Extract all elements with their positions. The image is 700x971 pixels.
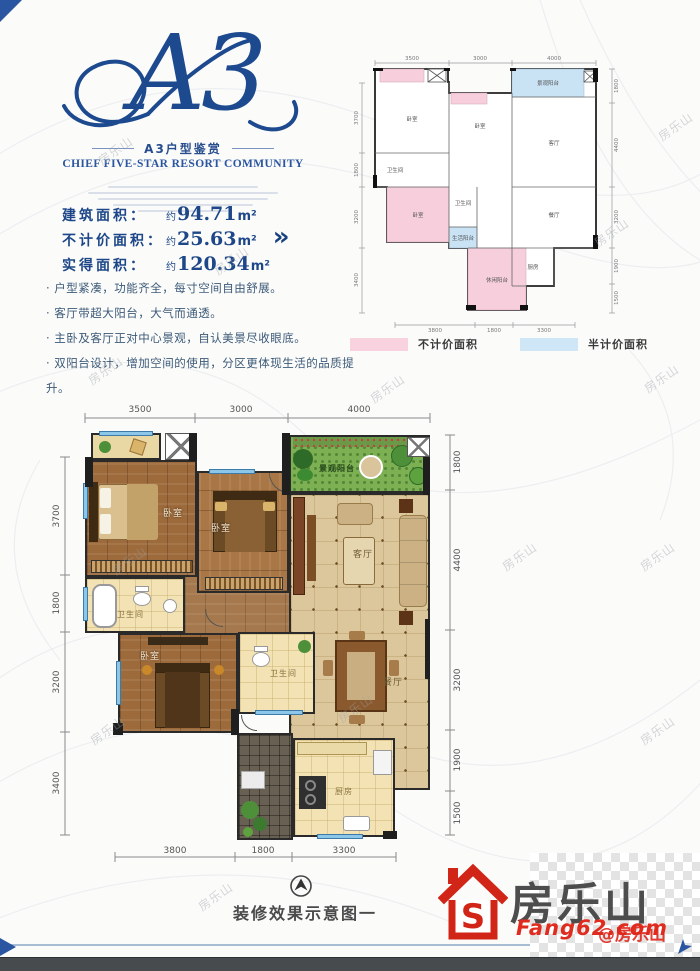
unit-subtitle: A3户型鉴赏 <box>144 140 222 157</box>
bed-blanket <box>165 672 200 728</box>
dim-label: 1500 <box>614 291 620 305</box>
nightstand-lamp <box>142 665 152 675</box>
window <box>116 661 121 705</box>
pillow <box>215 502 227 511</box>
dim-label: 1500 <box>453 801 463 824</box>
plant <box>243 827 253 837</box>
dim-label: 4000 <box>547 56 561 62</box>
subtitle-line-right <box>232 148 274 149</box>
bay-window-bedroom1 <box>91 433 161 460</box>
plant <box>241 801 259 819</box>
approx-mark: 约 <box>166 208 176 223</box>
legend-label-half-charge: 半计价面积 <box>588 336 648 352</box>
dim-label: 4400 <box>614 138 620 152</box>
plan-caption: 装修效果示意图一 <box>225 900 385 924</box>
area-value: 94.71 <box>177 203 237 225</box>
wall-segment <box>85 457 93 487</box>
subtitle-row: A3户型鉴赏 <box>58 140 308 157</box>
fridge <box>373 750 392 775</box>
kitchen-counter <box>297 742 367 755</box>
room-label: 卧室 <box>412 211 424 219</box>
room-kitchen: 厨房 <box>293 738 395 837</box>
feature-item: · 双阳台设计，增加空间的使用，分区更体现生活的品质提升。 <box>46 351 376 401</box>
north-arrow-icon <box>289 874 313 898</box>
table-decor <box>129 438 147 456</box>
burner <box>305 780 316 791</box>
room-service-balcony <box>237 733 293 840</box>
wall-segment <box>423 457 430 495</box>
window <box>317 834 363 839</box>
room-label: 卧室 <box>140 649 160 662</box>
room-bedroom3: 卧室 <box>118 633 238 733</box>
room-label: 卧室 <box>163 506 183 519</box>
window <box>83 483 88 519</box>
area-label: 实得面积： <box>62 255 166 275</box>
dim-label: 4400 <box>453 548 463 571</box>
bathtub <box>92 584 117 628</box>
feature-list: · 户型紧凑，功能齐全，每寸空间自由舒展。 · 客厅带超大阳台，大气而通透。 ·… <box>46 276 376 401</box>
wardrobe <box>91 560 193 573</box>
armchair <box>337 503 373 525</box>
area-label: 不计价面积： <box>62 230 166 250</box>
room-bedroom2: 卧室 <box>197 471 289 593</box>
approx-mark: 约 <box>166 258 176 273</box>
dim-label: 3400 <box>354 273 360 287</box>
brand-logo-block: S 房乐山 Fang62.com @房乐山 <box>438 854 700 958</box>
bed-headboard <box>155 663 210 672</box>
svg-text:S: S <box>461 897 486 937</box>
main-floorplan: 卧室 卧室 客厅 餐厅 景观阳台 <box>85 433 430 850</box>
feature-column <box>293 497 305 595</box>
window <box>255 710 303 715</box>
bed-headboard <box>89 482 98 542</box>
pillow <box>100 488 111 508</box>
double-chevron-icon: » <box>273 232 290 242</box>
dim-label: 3500 <box>129 405 152 415</box>
room-label: 餐厅 <box>383 675 403 688</box>
area-unit: m² <box>251 259 270 274</box>
house-logo-icon: S <box>438 860 508 944</box>
room-label: 餐厅 <box>548 211 560 219</box>
room-label: 卫生间 <box>117 609 144 620</box>
wall-segment <box>425 619 430 679</box>
dim-label: 1800 <box>453 450 463 473</box>
dim-label: 1800 <box>487 328 501 334</box>
watermark: 房乐山 <box>641 360 683 396</box>
room-label: 卫生间 <box>387 166 404 174</box>
room-bath2: 卫生间 <box>238 632 315 714</box>
nightstand-lamp <box>214 665 224 675</box>
dim-label: 1900 <box>614 259 620 273</box>
stove <box>299 776 326 809</box>
burner <box>305 794 316 805</box>
dim-label: 3200 <box>52 670 62 693</box>
shaft-box <box>407 437 430 457</box>
window-bottom-bar <box>0 957 700 971</box>
door-arc <box>241 715 257 731</box>
bed-blanket <box>127 484 158 540</box>
room-label: 客厅 <box>353 547 373 560</box>
dim-label: 3400 <box>52 771 62 794</box>
watermark: 房乐山 <box>637 538 679 574</box>
dim-label: 1800 <box>52 591 62 614</box>
area-row-actual: 实得面积： 约 120.34 m² <box>62 253 322 278</box>
wall-segment <box>189 433 197 461</box>
dim-label: 3200 <box>614 210 620 224</box>
side-table <box>399 611 413 625</box>
dim-label: 3000 <box>230 405 253 415</box>
room-label: 客厅 <box>548 139 560 147</box>
bay-window-area <box>380 69 424 82</box>
watermark: 房乐山 <box>499 538 541 574</box>
room-label: 景观阳台 <box>537 79 560 87</box>
script-line <box>98 198 268 201</box>
script-line <box>108 186 258 189</box>
room-label: 卧室 <box>406 115 418 123</box>
legend-swatch-half-charge <box>520 338 578 351</box>
room-label: 厨房 <box>335 786 353 797</box>
toilet <box>133 592 151 606</box>
dim-label: 3000 <box>473 56 487 62</box>
chair <box>389 660 399 676</box>
cursor-arrow-icon <box>676 938 694 956</box>
dim-label: 3700 <box>52 504 62 527</box>
wall-segment <box>383 831 397 839</box>
dim-label: 3700 <box>354 111 360 125</box>
side-table <box>399 499 413 513</box>
area-row-free: 不计价面积： 约 25.63 m² » <box>62 228 322 253</box>
room-bath1: 卫生间 <box>85 577 185 633</box>
subtitle-line-left <box>92 148 134 149</box>
tv-cabinet <box>307 515 316 581</box>
community-tagline: CHIEF FIVE-STAR RESORT COMMUNITY <box>58 158 308 170</box>
feature-item: · 户型紧凑，功能齐全，每寸空间自由舒展。 <box>46 276 376 301</box>
sofa <box>399 515 427 607</box>
room-bedroom1: 卧室 <box>85 460 197 577</box>
dim-label: 3200 <box>354 210 360 224</box>
wall-segment <box>282 433 290 495</box>
dining-table-top <box>347 652 375 700</box>
corner-triangle-top-left <box>0 0 22 22</box>
area-label: 建筑面积： <box>62 205 166 225</box>
feature-item: · 主卧及客厅正对中心景观，自认美景尽收眼底。 <box>46 326 376 351</box>
sink <box>163 599 177 613</box>
room-label: 卧室 <box>211 521 231 534</box>
room-label: 厨房 <box>527 263 539 271</box>
room-label: 卧室 <box>474 122 486 130</box>
room-label: 景观阳台 <box>319 463 355 474</box>
area-unit: m² <box>238 234 257 249</box>
script-line <box>88 192 278 195</box>
dim-label: 3800 <box>428 328 442 334</box>
dim-label: 1800 <box>614 79 620 93</box>
unit-logo-block: A3 <box>52 18 322 148</box>
watermark: 房乐山 <box>637 712 679 748</box>
round-table <box>359 455 383 479</box>
approx-mark: 约 <box>166 233 176 248</box>
area-unit: m² <box>238 209 257 224</box>
wardrobe <box>205 577 283 590</box>
room-label: 卫生间 <box>455 199 472 207</box>
window <box>99 431 153 436</box>
coffee-table <box>343 537 375 585</box>
dim-label: 1900 <box>453 748 463 771</box>
wall-segment <box>231 709 239 735</box>
tv-console <box>148 637 208 645</box>
wall-segment <box>113 723 123 735</box>
plant <box>298 640 311 653</box>
room-label: 生活阳台 <box>452 234 475 242</box>
washer <box>241 771 265 789</box>
dim-label: 3300 <box>537 328 551 334</box>
area-value: 25.63 <box>177 228 237 250</box>
chair <box>323 660 333 676</box>
fern-plant <box>297 469 313 481</box>
legend-label-no-charge: 不计价面积 <box>418 336 478 352</box>
unit-name: A3 <box>130 18 263 128</box>
schematic-floorplan: 3500 3000 4000 3700 1800 3200 3400 1800 … <box>350 55 680 337</box>
window <box>209 469 255 474</box>
room-label: 卫生间 <box>270 668 297 679</box>
dim-label: 3500 <box>405 56 419 62</box>
dim-label: 3200 <box>453 668 463 691</box>
legend: 不计价面积 半计价面积 <box>350 336 648 352</box>
chair <box>349 715 365 724</box>
bay-window-area <box>451 93 487 104</box>
legend-swatch-no-charge <box>350 338 408 351</box>
pillow <box>100 514 111 534</box>
plant-decor <box>99 441 111 453</box>
corner-triangle-bottom-left <box>0 938 16 956</box>
shrub <box>293 449 313 469</box>
dim-label: 4000 <box>348 405 371 415</box>
kitchen-sink <box>343 816 370 831</box>
window <box>83 587 88 621</box>
area-value: 120.34 <box>177 253 250 275</box>
bed-headboard <box>213 491 277 500</box>
toilet <box>252 652 270 667</box>
plant <box>253 817 267 831</box>
area-info: 建筑面积： 约 94.71 m² 不计价面积： 约 25.63 m² » 实得面… <box>62 203 322 278</box>
dim-label: 1800 <box>354 163 360 177</box>
chair <box>349 631 365 640</box>
room-label: 休闲阳台 <box>486 276 509 284</box>
brand-watermark: @房乐山 <box>598 920 666 945</box>
pillow <box>263 502 275 511</box>
feature-item: · 客厅带超大阳台，大气而通透。 <box>46 301 376 326</box>
